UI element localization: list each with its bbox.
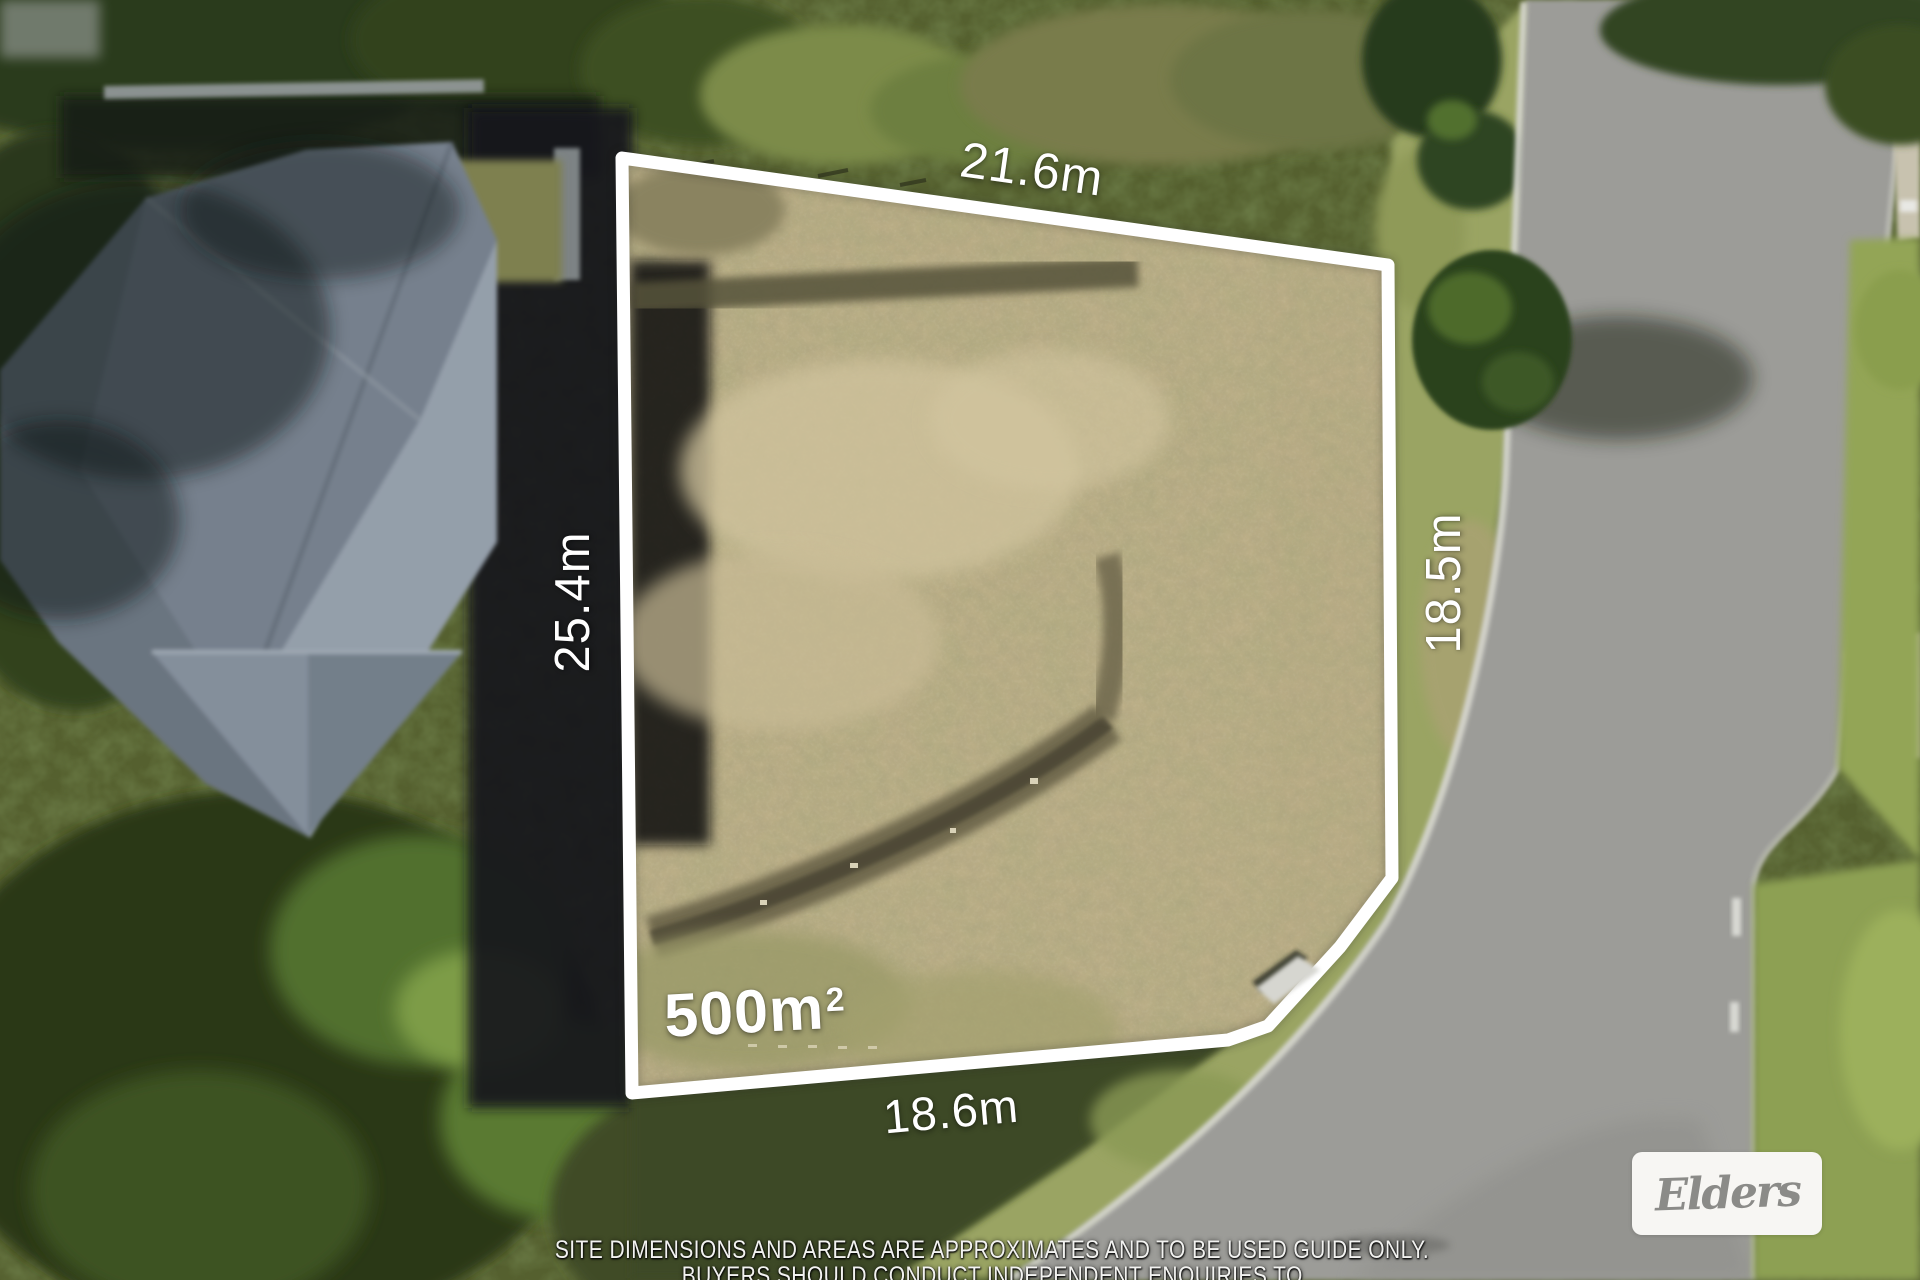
dimension-label-left: 25.4m (545, 531, 601, 672)
lot-area-label: 500m2 (662, 971, 847, 1050)
disclaimer-line-2: BUYERS SHOULD CONDUCT INDEPENDENT ENQUIR… (681, 1264, 1302, 1280)
mailbox (1900, 200, 1917, 212)
dimension-label-right: 18.5m (1416, 512, 1472, 653)
disclaimer: SITE DIMENSIONS AND AREAS ARE APPROXIMAT… (472, 1238, 1513, 1280)
dimension-label-bottom: 18.6m (881, 1078, 1021, 1145)
wall-shadow-strip (630, 260, 710, 845)
agency-logo-badge: Elders (1632, 1152, 1822, 1235)
disclaimer-line-1: SITE DIMENSIONS AND AREAS ARE APPROXIMAT… (555, 1238, 1429, 1263)
lot-area-superscript: 2 (825, 982, 847, 1020)
lot-area-value: 500m (663, 973, 826, 1049)
agency-logo-text: Elders (1654, 1165, 1801, 1221)
aerial-photo-canvas: 21.6m 25.4m 18.5m 18.6m 500m2 SITE DIMEN… (0, 0, 1920, 1280)
